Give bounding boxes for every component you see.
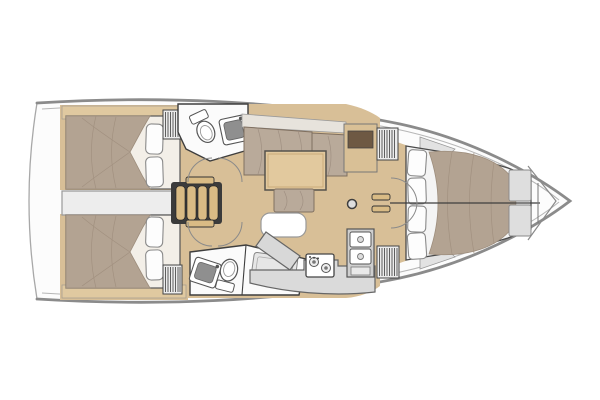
stove (306, 254, 334, 277)
cabinet-inset (348, 131, 373, 148)
locker-slats (380, 130, 395, 158)
dining-table (265, 151, 326, 190)
stove-knob (309, 256, 311, 258)
sink-drawer (351, 267, 370, 275)
door-leaf (372, 194, 390, 200)
pillow (407, 232, 427, 259)
locker-slats (166, 267, 181, 292)
aft-cabin-port (62, 106, 186, 189)
pillow (145, 250, 163, 281)
bench-seat (274, 189, 314, 212)
stair-tread (187, 186, 196, 220)
mast-post (348, 200, 357, 209)
yacht-floor-plan (0, 0, 600, 400)
stair-tread (176, 186, 185, 220)
pillow (407, 149, 427, 176)
pillow (145, 157, 163, 188)
stair-tread (209, 186, 218, 220)
door-leaf (186, 177, 214, 184)
headboard-panel (509, 205, 531, 236)
fridge-locker (377, 246, 399, 278)
engine-compartment (62, 191, 190, 215)
door-leaf (186, 220, 214, 227)
door-leaf (372, 206, 390, 212)
headboard-panel (509, 170, 531, 201)
stove-knob (317, 257, 319, 259)
pillow (145, 217, 163, 248)
double-sink (347, 229, 374, 277)
companionway-stairs (171, 182, 222, 224)
aft-cabin-starboard (62, 215, 186, 298)
pillow (145, 124, 163, 155)
stair-tread (198, 186, 207, 220)
floor-plan-canvas (0, 0, 600, 400)
stove-knob (313, 257, 315, 259)
